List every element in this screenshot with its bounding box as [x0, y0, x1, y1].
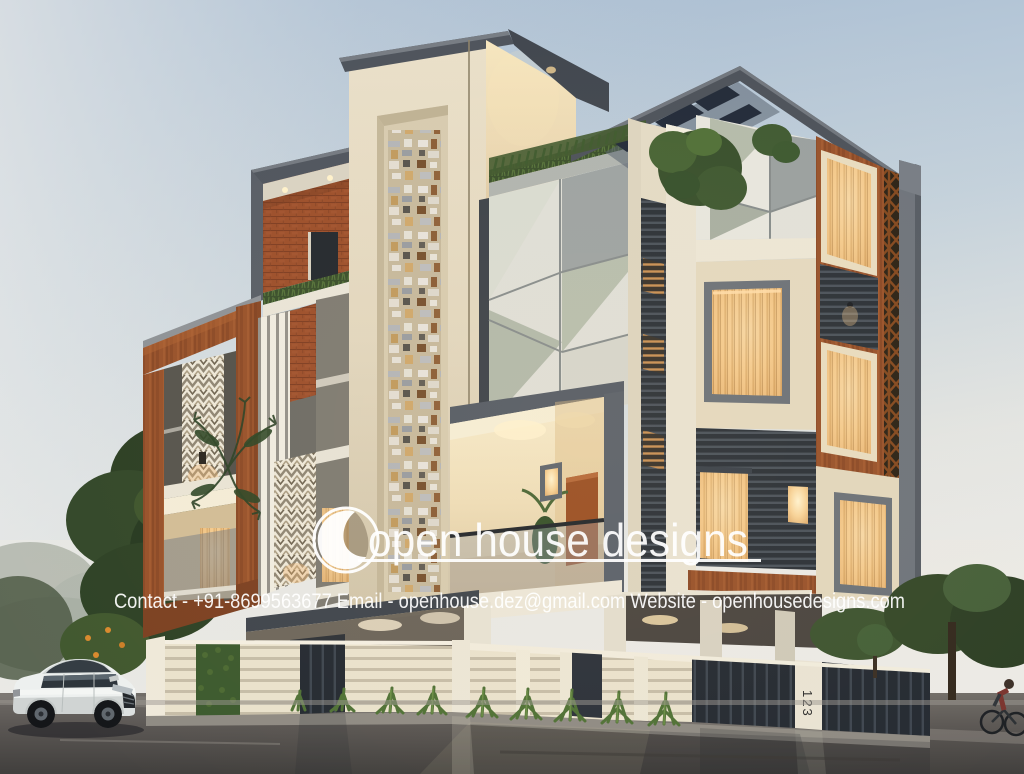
svg-text:Contact - +91-8699563677 Emai: Contact - +91-8699563677 Email - openhou… — [114, 590, 905, 613]
svg-text:open house designs: open house designs — [368, 514, 748, 566]
